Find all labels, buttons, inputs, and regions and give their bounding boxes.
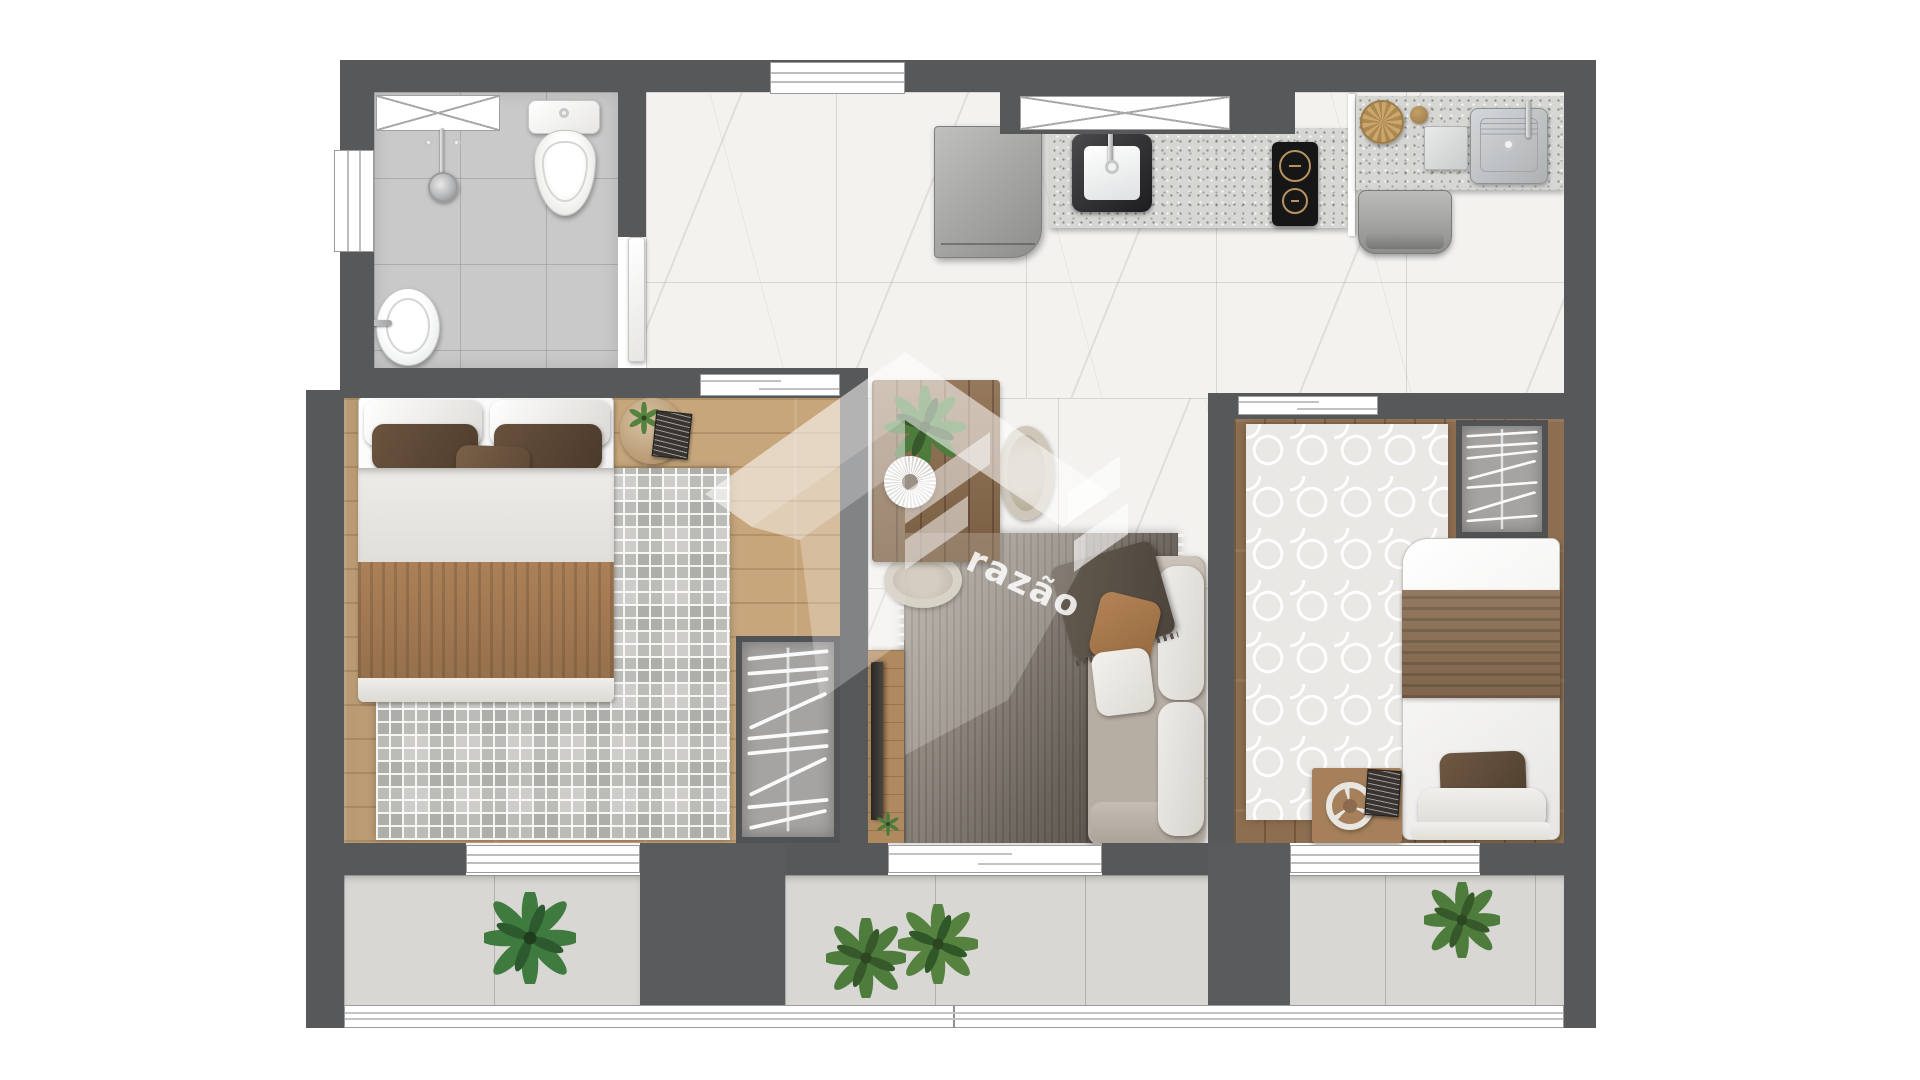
bed1-foot-fold bbox=[358, 678, 614, 702]
bedroom2-sliding-door bbox=[1238, 396, 1378, 415]
sofa-back-cushion-2 bbox=[1158, 702, 1204, 836]
sunburst-plate bbox=[884, 456, 936, 508]
bed1-brown-blanket bbox=[358, 562, 614, 680]
floor-plan-scene: razão bbox=[0, 0, 1920, 1080]
console-plant-icon bbox=[876, 812, 900, 836]
balcony-plant-center1-icon bbox=[826, 918, 906, 998]
bedroom2-open-wardrobe bbox=[1456, 420, 1548, 538]
laundry-wicker-basket bbox=[1360, 100, 1404, 144]
wall-bathroom-right bbox=[618, 92, 646, 237]
cooktop-burner-rear bbox=[1282, 188, 1308, 214]
dining-chair-east bbox=[998, 426, 1054, 520]
wall-bottom-b bbox=[785, 843, 888, 875]
balcony-plant-left-icon bbox=[484, 892, 576, 984]
wall-bottom-a bbox=[344, 843, 466, 875]
washing-machine bbox=[1358, 190, 1452, 254]
shower-arm bbox=[440, 128, 444, 176]
wall-top bbox=[340, 60, 1596, 92]
wall-bottom-d bbox=[1480, 843, 1564, 875]
nightstand-books bbox=[652, 410, 693, 460]
refrigerator bbox=[934, 126, 1042, 258]
bed2-brown-blanket bbox=[1402, 590, 1560, 698]
kitchen-crossed-window bbox=[1020, 96, 1230, 130]
wardrobe1-rails-icon bbox=[742, 642, 834, 837]
bathroom-door bbox=[628, 237, 645, 362]
kitchen-top-window bbox=[770, 62, 905, 94]
living-balcony-door bbox=[888, 845, 1102, 873]
bathroom-washbasin bbox=[376, 288, 440, 366]
bed1-sheet bbox=[358, 468, 614, 564]
wall-living-bedroom2 bbox=[1208, 393, 1234, 845]
tv bbox=[871, 662, 883, 820]
toilet-flush-button bbox=[559, 108, 569, 118]
wall-left-lower bbox=[306, 390, 344, 1028]
balcony-plant-center2-icon bbox=[898, 904, 978, 984]
balcony-divider-left bbox=[640, 843, 785, 1005]
laundry-drain bbox=[1502, 138, 1515, 151]
bathroom-wall-window bbox=[334, 150, 374, 252]
bedroom1-balcony-window bbox=[466, 845, 640, 873]
balcony-glass-railing bbox=[344, 1005, 1564, 1028]
laundry-jar bbox=[1410, 106, 1428, 124]
balcony-plant-right-icon bbox=[1424, 882, 1500, 958]
wall-bottom-c bbox=[1102, 843, 1208, 875]
kitchen-drain bbox=[1105, 160, 1119, 174]
shower-head bbox=[428, 172, 458, 202]
shower-valve-right bbox=[452, 138, 461, 147]
balcony-divider-right bbox=[1208, 843, 1290, 1005]
desk-book bbox=[1364, 769, 1401, 817]
wardrobe2-rails-icon bbox=[1462, 426, 1542, 532]
laundry-soap-box bbox=[1424, 126, 1468, 170]
shower-valve-left bbox=[424, 138, 433, 147]
laundry-faucet bbox=[1526, 100, 1531, 138]
wall-right bbox=[1564, 60, 1596, 1028]
dining-table-plant-icon bbox=[884, 386, 966, 468]
bedroom2-balcony-window bbox=[1290, 845, 1480, 873]
bedroom1-open-wardrobe bbox=[736, 636, 840, 843]
bed2-foot-fold bbox=[1410, 822, 1552, 840]
sofa-white-pillow bbox=[1090, 647, 1155, 718]
cooktop-burner-front bbox=[1279, 150, 1311, 182]
bedroom1-sliding-door bbox=[700, 374, 840, 396]
wall-bedroom1-right bbox=[840, 368, 868, 845]
laundry-divider-panel bbox=[1348, 94, 1355, 236]
bathroom-ventilation-shaft bbox=[376, 95, 500, 131]
